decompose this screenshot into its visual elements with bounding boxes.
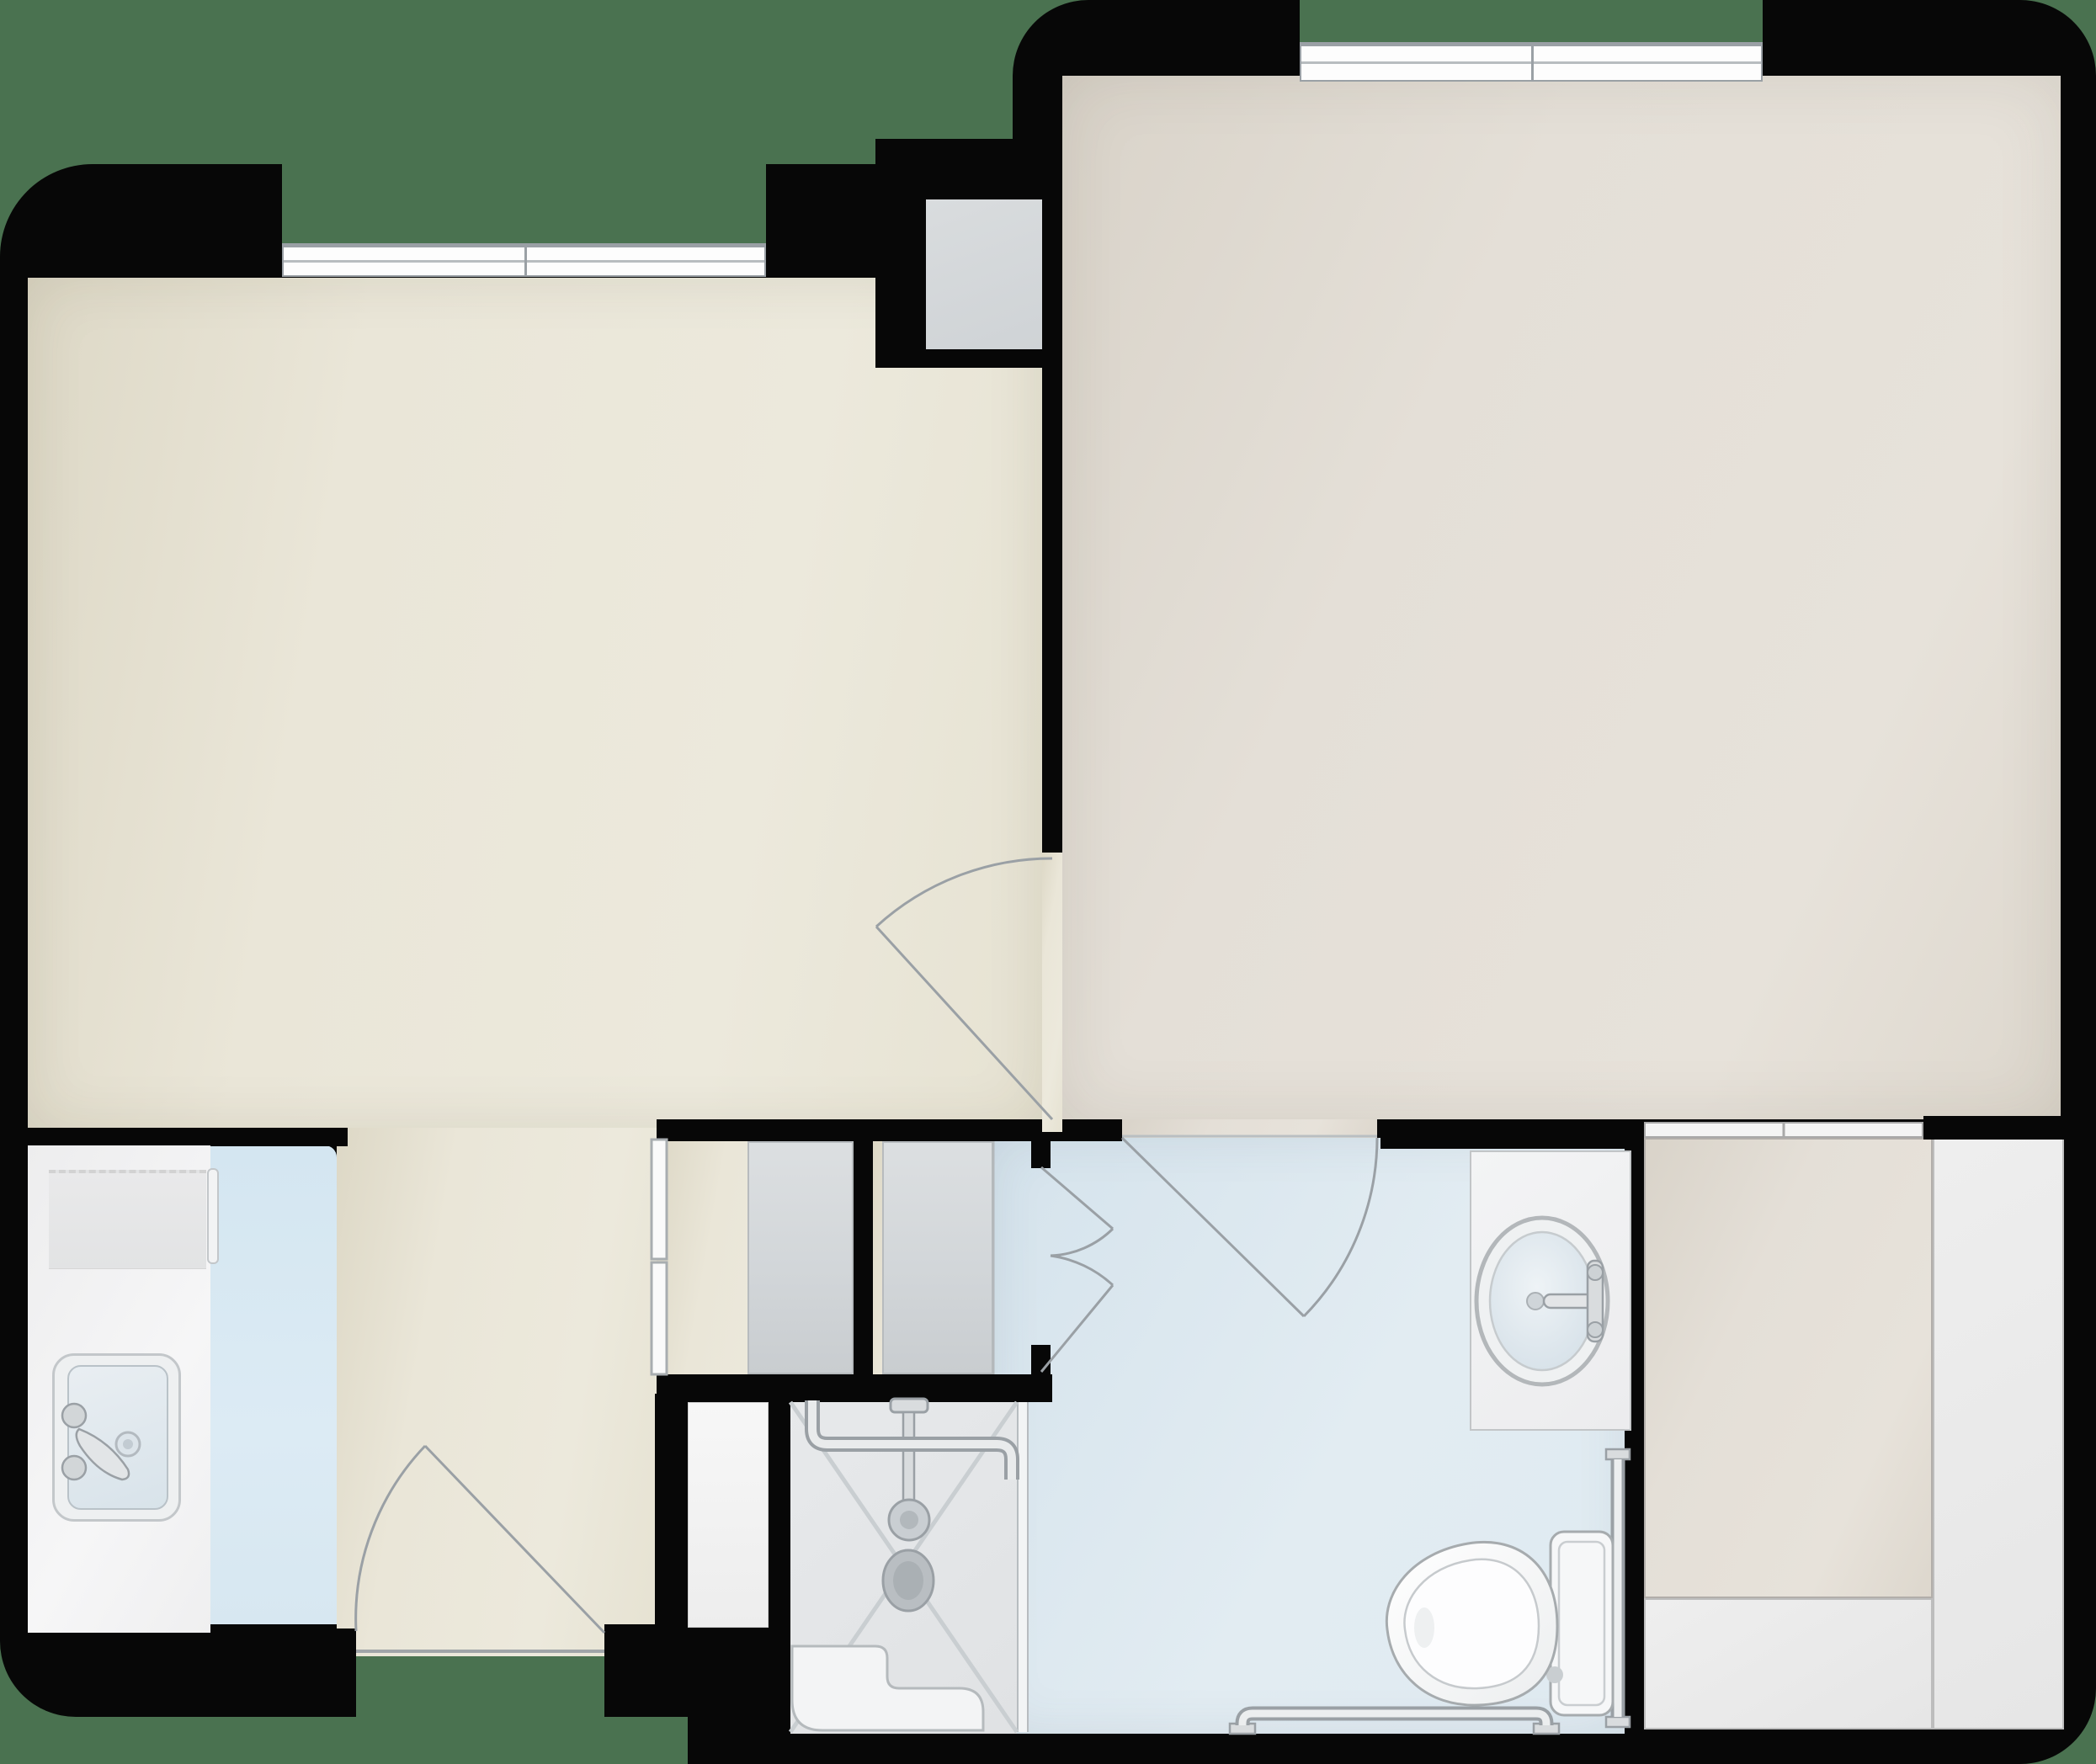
grab-bar-bottom [1230, 1714, 1559, 1734]
living-bedroom-door-leaf [876, 927, 1052, 1119]
bathroom-double-doors [1041, 1167, 1113, 1372]
shower-seat [792, 1646, 983, 1730]
shower-drain-grate [893, 1561, 923, 1600]
bedroom-bathroom-door-leaf [1122, 1138, 1304, 1316]
kitchen-sink-fittings [62, 1404, 140, 1480]
living-bedroom-door-arc [876, 858, 1052, 927]
shower-head [889, 1399, 929, 1540]
floor-plan-canvas [0, 0, 2096, 1764]
entry-door [356, 1446, 604, 1633]
bedroom-bathroom-door [1122, 1138, 1377, 1316]
closet-sliding-doors [652, 1140, 667, 1374]
vanity-sink [1476, 1218, 1608, 1384]
entry-door-leaf [425, 1446, 604, 1633]
toilet [1386, 1532, 1613, 1715]
entry-door-arc [356, 1446, 425, 1631]
fixture-overlay [0, 0, 2096, 1764]
living-bedroom-door [876, 858, 1052, 1119]
bedroom-bathroom-door-arc [1304, 1138, 1377, 1316]
